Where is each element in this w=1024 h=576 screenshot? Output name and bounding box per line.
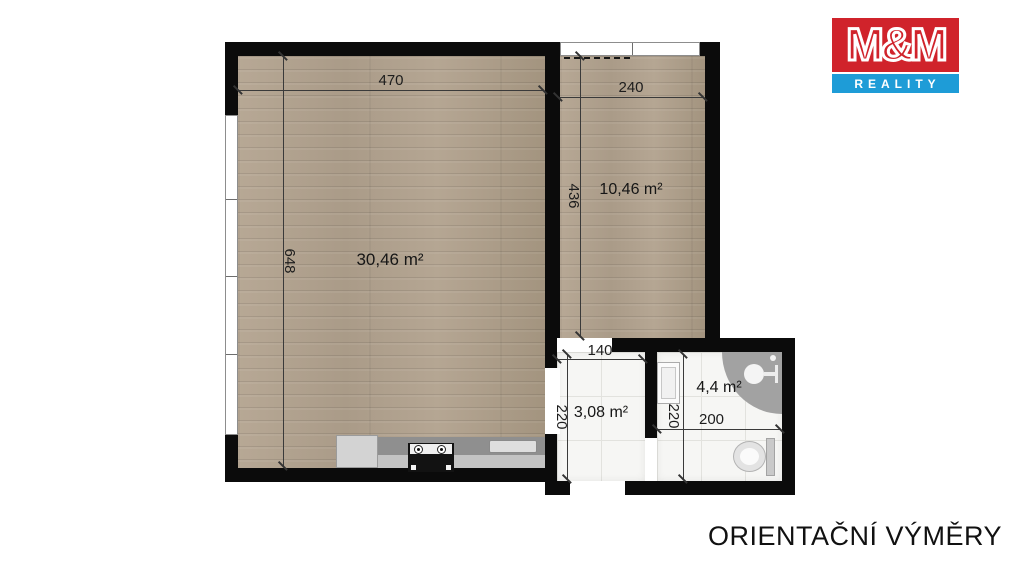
stove-foot bbox=[411, 465, 416, 470]
entry-door-opening bbox=[570, 481, 625, 495]
dim-label-220-bath: 220 bbox=[665, 396, 681, 436]
wall-right-upper bbox=[705, 42, 720, 352]
window-divider bbox=[226, 199, 237, 200]
toilet-bowl bbox=[733, 441, 766, 472]
window-divider bbox=[226, 354, 237, 355]
stove-burner bbox=[437, 445, 446, 454]
window-divider bbox=[226, 276, 237, 277]
floorplan-canvas: 470 240 648 436 140 220 200 220 30,46 m²… bbox=[0, 0, 1024, 576]
balcony-door-window-opening bbox=[560, 42, 700, 56]
window-left-wall bbox=[225, 115, 238, 435]
balcony-door-swing-dashed bbox=[564, 57, 630, 59]
dim-line-220-bath bbox=[683, 354, 684, 479]
stove bbox=[408, 443, 454, 472]
area-label-hall: 3,08 m² bbox=[559, 404, 643, 422]
logo-red-box: M&M bbox=[832, 18, 959, 72]
shower-knob bbox=[770, 355, 776, 361]
dim-line-140 bbox=[557, 359, 643, 360]
area-label-bath: 4,4 m² bbox=[659, 379, 779, 397]
wall-bath-right bbox=[782, 338, 795, 495]
area-label-bedroom: 10,46 m² bbox=[556, 181, 706, 199]
toilet-bowl-inner bbox=[740, 448, 759, 465]
wall-bottom-living bbox=[225, 468, 560, 482]
fridge bbox=[336, 435, 378, 468]
kitchen-sink bbox=[489, 440, 537, 453]
area-label-living: 30,46 m² bbox=[290, 250, 490, 270]
stove-burner bbox=[414, 445, 423, 454]
window-divider bbox=[632, 43, 633, 55]
logo-mm-text: M&M bbox=[846, 18, 944, 72]
logo-blue-bar: REALITY bbox=[832, 74, 959, 93]
orientational-measurements-caption: ORIENTAČNÍ VÝMĚRY bbox=[708, 521, 1002, 552]
door-hall-to-bath bbox=[645, 438, 657, 481]
mm-reality-logo: M&M REALITY bbox=[832, 18, 959, 93]
logo-reality-text: REALITY bbox=[850, 77, 940, 91]
stove-foot bbox=[446, 465, 451, 470]
toilet-tank bbox=[766, 438, 775, 476]
